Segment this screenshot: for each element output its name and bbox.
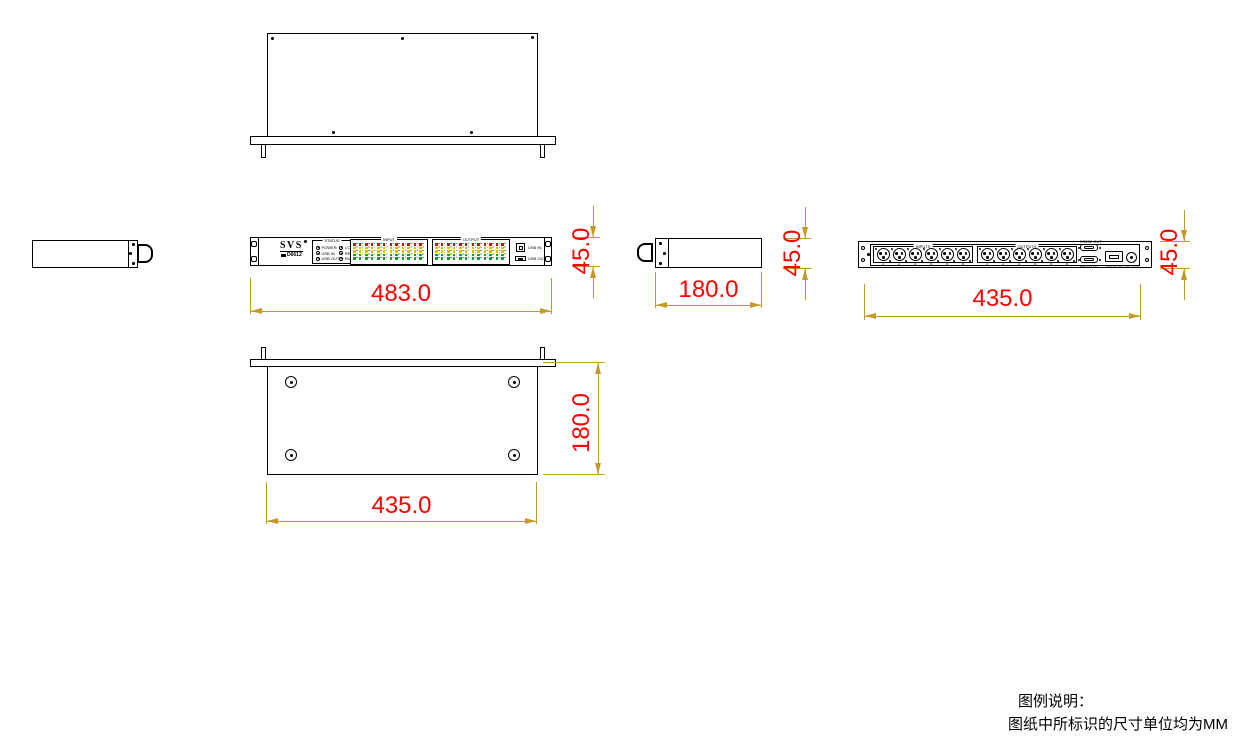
screw-dot <box>1099 259 1101 261</box>
screw-dot <box>401 37 404 40</box>
top-view-tab-left <box>261 145 266 158</box>
led-icon <box>339 251 343 255</box>
scale-marks <box>417 243 419 260</box>
bottom-view <box>250 347 556 475</box>
meter-channel <box>435 243 446 262</box>
channel-number: 2 <box>1002 262 1004 266</box>
channel-number: 3 <box>914 262 916 266</box>
rack-slot <box>251 241 257 247</box>
screw-dot <box>659 262 662 265</box>
screw-dot <box>531 36 534 39</box>
scale-marks <box>444 243 446 260</box>
side-body <box>655 238 762 268</box>
brand-text: SVS <box>280 240 303 251</box>
led-icon <box>316 251 320 255</box>
led-icon <box>316 246 320 250</box>
meter-channel <box>353 243 364 262</box>
scale-marks <box>450 243 452 260</box>
channel-number: 5 <box>1050 262 1052 266</box>
usb-out-label: USB OUT <box>528 256 546 261</box>
model-label: D6612 <box>281 253 302 258</box>
brand-logo: SVS <box>280 241 303 252</box>
top-view-front-strip <box>250 136 556 145</box>
meter-channel <box>459 243 470 262</box>
legend-title: 图例说明： <box>1018 692 1093 712</box>
screw-dot <box>332 131 335 134</box>
xlr-connector-icon: 6 <box>957 248 970 261</box>
logo-mark-icon <box>281 254 286 258</box>
dim-label: 180.0 <box>570 392 594 454</box>
dim-label: 435.0 <box>864 287 1141 311</box>
screw-dot <box>659 242 662 245</box>
technical-drawing-canvas: SVS D6612 STATUS POWERLCUSB INRESETUSB O… <box>0 0 1254 751</box>
meter-row <box>435 243 507 262</box>
channel-number: 1 <box>882 262 884 266</box>
xlr-output-group: OUTPUTS 123456 <box>977 246 1077 263</box>
status-led-label: USB IN <box>322 251 335 256</box>
led-icon <box>339 246 343 250</box>
dim-bottom-width: 435.0 <box>266 482 537 524</box>
meter-group-title: INPUT <box>381 237 397 242</box>
scale-marks <box>468 243 470 260</box>
bottom-view-body <box>267 366 538 475</box>
scale-marks <box>487 243 489 260</box>
screw-dot <box>867 253 870 256</box>
dim-label: 45.0 <box>570 222 594 280</box>
top-view-body <box>267 33 538 137</box>
top-view <box>250 28 556 161</box>
dc-label: DC 12V <box>1125 264 1139 269</box>
side-body <box>32 240 138 268</box>
rack-slot <box>251 256 257 262</box>
optical-port <box>1105 251 1123 262</box>
screw-dot <box>1078 259 1080 261</box>
meter-channel <box>447 243 458 262</box>
scale-marks <box>492 243 494 260</box>
dim-label: 45.0 <box>781 225 805 281</box>
channel-number: 3 <box>1018 262 1020 266</box>
status-led: POWER <box>316 245 339 250</box>
ear-hole <box>861 258 865 262</box>
rs232-in-port <box>1080 256 1098 263</box>
xlr-connector-icon: 5 <box>941 248 954 261</box>
legend-unit-note: 图纸中所标识的尺寸单位均为MM <box>1008 715 1228 735</box>
xlr-connector-icon: 5 <box>1045 248 1058 261</box>
dim-side-depth: 180.0 <box>655 272 762 308</box>
scale-marks <box>368 243 370 260</box>
screw-dot <box>129 252 132 255</box>
xlr-connector-icon: 3 <box>909 248 922 261</box>
dc-power-jack <box>1126 252 1137 263</box>
scale-marks <box>499 243 501 260</box>
optical-label: OPTICAL <box>1106 264 1123 269</box>
scale-marks <box>475 243 477 260</box>
dim-label: 45.0 <box>1158 224 1182 280</box>
scale-marks <box>380 243 382 260</box>
input-meter-panel: INPUT <box>350 239 428 265</box>
ear-hole <box>861 246 865 250</box>
led-icon <box>316 257 320 261</box>
xlr-connector-icon: 3 <box>1013 248 1026 261</box>
meter-channel <box>365 243 376 262</box>
screw-dot <box>1099 247 1101 249</box>
dim-rear-width: 435.0 <box>864 284 1141 320</box>
scale-marks <box>504 243 506 260</box>
rubber-foot <box>508 376 520 388</box>
channel-number: 2 <box>898 262 900 266</box>
xlr-connector-icon: 2 <box>893 248 906 261</box>
ear-hole <box>1145 246 1149 250</box>
status-led: USB IN <box>316 251 339 256</box>
status-led: USB OUT <box>316 256 339 261</box>
screw-dot <box>663 252 666 255</box>
screw-dot <box>1078 247 1080 249</box>
xlr-connector-icon: 6 <box>1061 248 1074 261</box>
rs232-out-port <box>1080 244 1098 251</box>
xlr-connector-icon: 1 <box>877 248 890 261</box>
rs232-in-label: RS232 IN <box>1080 264 1097 269</box>
scale-marks <box>480 243 482 260</box>
xlr-row: 123456 <box>875 248 971 261</box>
ear-hole <box>1145 258 1149 262</box>
xlr-connector-icon: 4 <box>1029 248 1042 261</box>
meter-channel <box>472 243 483 262</box>
scale-marks <box>456 243 458 260</box>
usb-out-port <box>515 256 526 261</box>
channel-number: 4 <box>1034 262 1036 266</box>
side-view <box>637 238 762 268</box>
scale-marks <box>422 243 424 260</box>
rubber-foot <box>285 449 297 461</box>
scale-marks <box>398 243 400 260</box>
led-icon <box>339 257 343 261</box>
channel-number: 5 <box>946 262 948 266</box>
scale-marks <box>410 243 412 260</box>
dim-label: 483.0 <box>250 282 552 306</box>
meter-channel <box>414 243 425 262</box>
scale-marks <box>374 243 376 260</box>
usb-in-label: USB IN <box>528 245 541 250</box>
xlr-connector-icon: 2 <box>997 248 1010 261</box>
scale-marks <box>405 243 407 260</box>
screw-dot <box>132 262 135 265</box>
output-meter-panel: OUTPUT <box>432 239 510 265</box>
xlr-connector-icon: 4 <box>925 248 938 261</box>
rack-slot <box>545 241 551 247</box>
left-side-view <box>32 240 158 268</box>
scale-marks <box>393 243 395 260</box>
scale-marks <box>462 243 464 260</box>
meter-row <box>353 243 425 262</box>
meter-group-title: OUTPUT <box>461 237 481 242</box>
xlr-connector-icon: 1 <box>981 248 994 261</box>
rubber-foot <box>285 376 297 388</box>
trademark-icon <box>304 240 307 243</box>
channel-number: 6 <box>1066 262 1068 266</box>
status-led-panel: STATUS POWERLCUSB INRESETUSB OUTRUN <box>312 240 352 264</box>
status-led-label: USB OUT <box>322 256 340 261</box>
meter-channel <box>484 243 495 262</box>
handle-icon <box>137 244 153 263</box>
handle-icon <box>637 243 653 262</box>
rear-view: INPUTS 123456 OUTPUTS 123456 RS232 OUT R… <box>858 241 1152 268</box>
ear-plate-line <box>668 238 669 268</box>
front-view: SVS D6612 STATUS POWERLCUSB INRESETUSB O… <box>250 237 552 266</box>
scale-marks <box>356 243 358 260</box>
status-led-label: POWER <box>322 245 337 250</box>
meter-channel <box>390 243 401 262</box>
scale-marks <box>362 243 364 260</box>
scale-marks <box>386 243 388 260</box>
dim-front-width: 483.0 <box>250 278 552 314</box>
screw-dot <box>470 131 473 134</box>
meter-channel <box>496 243 507 262</box>
dim-label: 435.0 <box>266 494 537 518</box>
dim-label: 180.0 <box>655 278 762 302</box>
screw-dot <box>132 243 135 246</box>
status-led-grid: POWERLCUSB INRESETUSB OUTRUN <box>316 245 350 261</box>
channel-number: 6 <box>962 262 964 266</box>
meter-channel <box>377 243 388 262</box>
channel-number: 1 <box>986 262 988 266</box>
xlr-row: 123456 <box>979 248 1075 261</box>
top-view-tab-right <box>540 145 545 158</box>
rubber-foot <box>508 449 520 461</box>
meter-channel <box>402 243 413 262</box>
scale-marks <box>438 243 440 260</box>
usb-in-port <box>516 243 525 252</box>
screw-dot <box>271 37 274 40</box>
rack-ear-line-left <box>258 237 259 266</box>
status-title: STATUS <box>322 238 341 243</box>
xlr-input-group: INPUTS 123456 <box>873 246 973 263</box>
channel-number: 4 <box>930 262 932 266</box>
